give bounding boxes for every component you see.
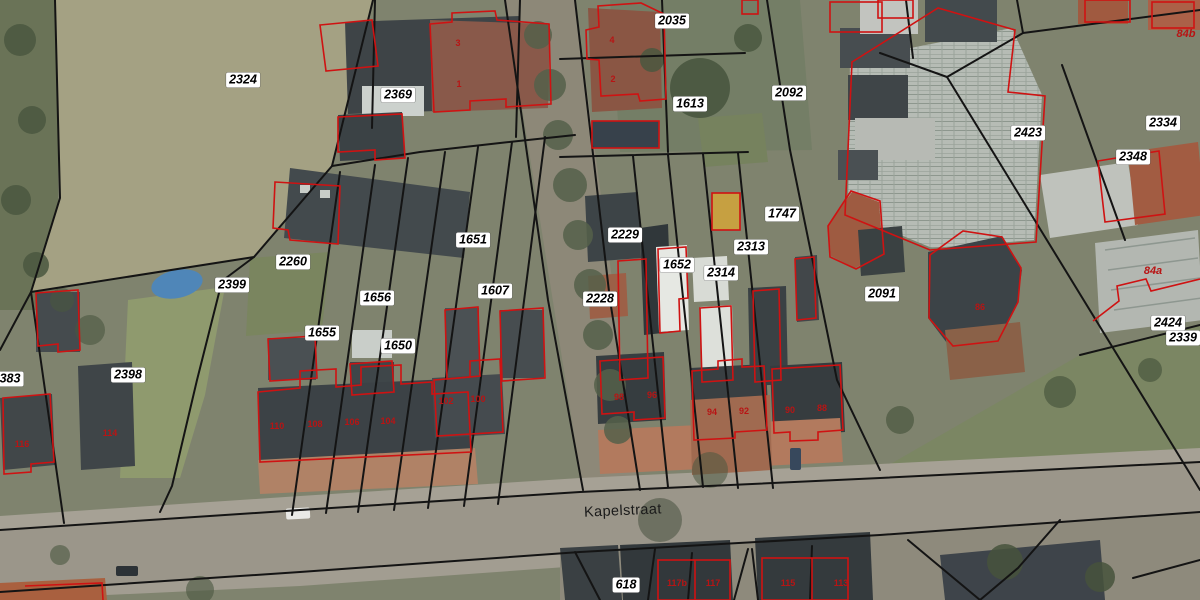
yellow-roof-building [712, 193, 740, 230]
street-name-label: Kapelstraat [584, 501, 662, 520]
big-tree-1613 [670, 58, 730, 118]
map-viewport[interactable]: 2324236920351613209224232334234822602399… [0, 0, 1200, 600]
dark-car [116, 566, 138, 576]
blue-car [790, 448, 801, 470]
